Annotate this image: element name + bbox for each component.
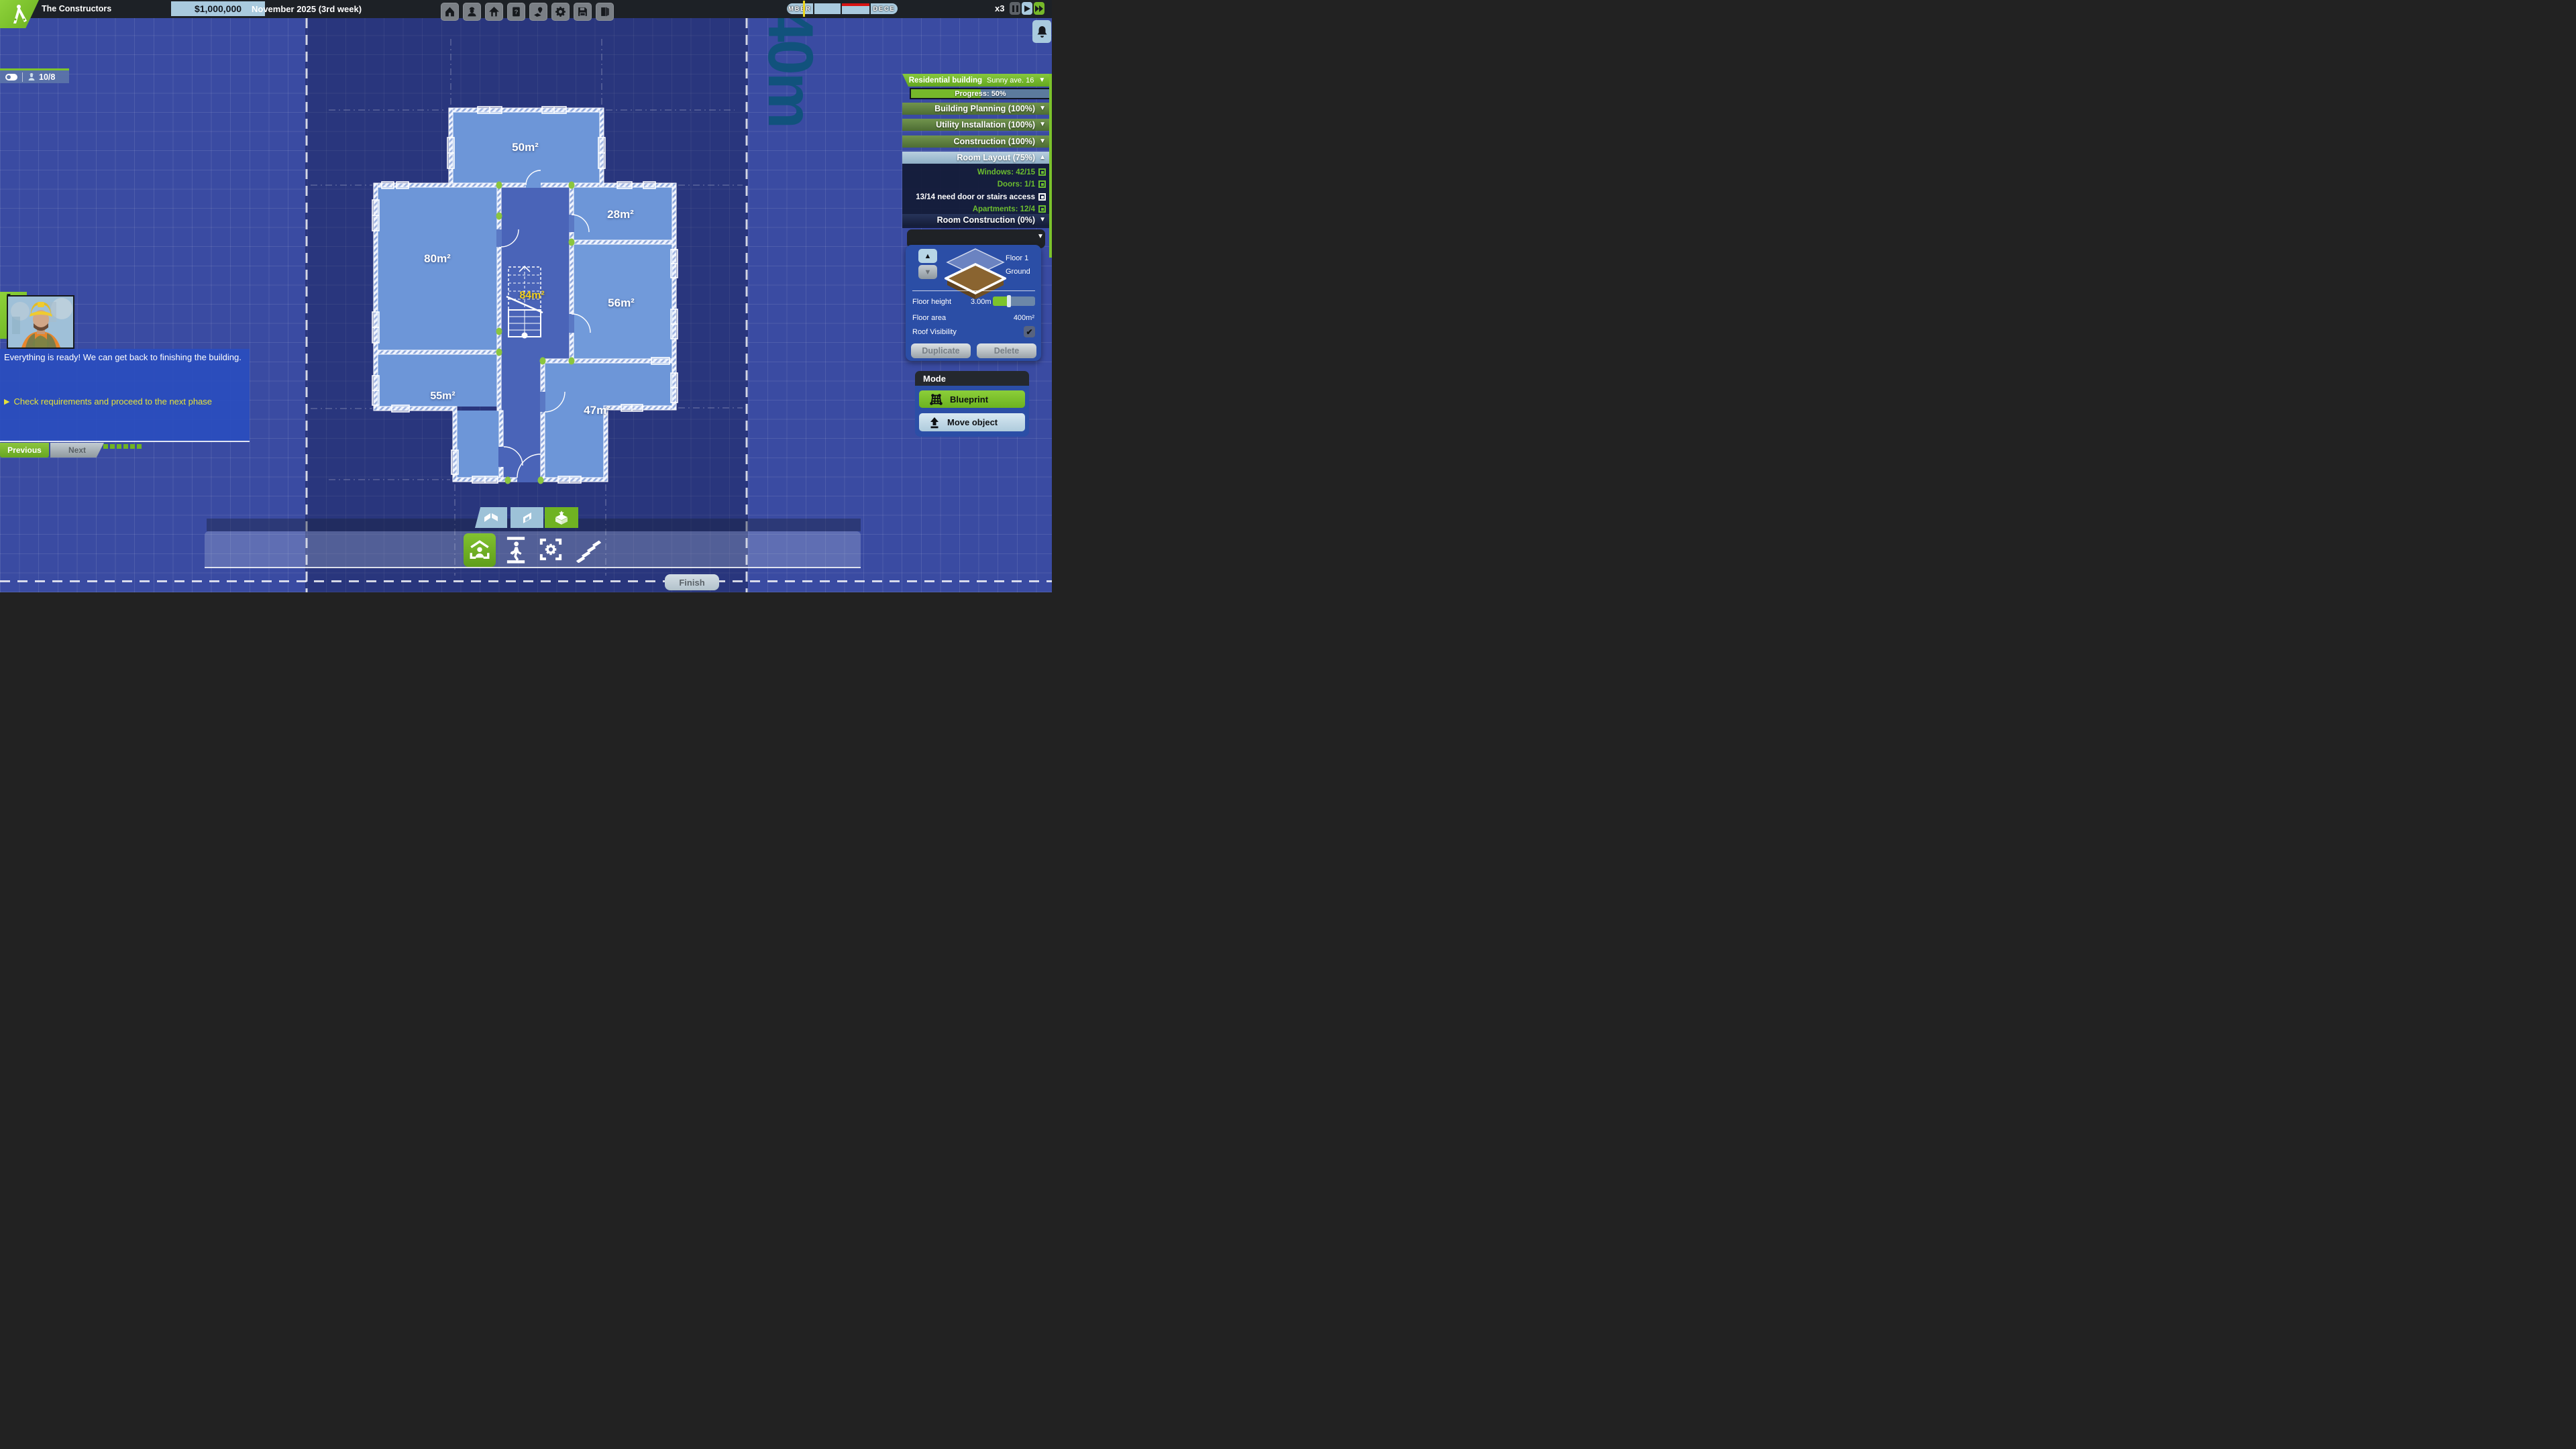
help-button[interactable]: ?: [507, 3, 525, 21]
delete-button[interactable]: Delete: [977, 343, 1036, 358]
blueprint-grid-icon: [928, 394, 943, 405]
slider-handle[interactable]: [1007, 295, 1011, 307]
roof-visibility-checkbox[interactable]: ✔: [1024, 326, 1035, 337]
checkbox-icon[interactable]: [1038, 168, 1046, 176]
crew-badge[interactable]: 10/8: [0, 68, 69, 83]
worker-icon: [28, 72, 36, 81]
plot-boundary-bottom: [0, 580, 1052, 582]
floor-height-value: 3.00m: [971, 298, 991, 306]
walls-corner-icon: [482, 511, 500, 525]
app-title: The Constructors: [42, 4, 111, 13]
home-button[interactable]: [441, 3, 459, 21]
check-doors[interactable]: Doors: 1/1: [902, 179, 1046, 189]
dialog-objective[interactable]: ▶ Check requirements and proceed to the …: [4, 396, 239, 407]
floor-area-value: 400m²: [1014, 314, 1034, 322]
chevron-down-icon: ▼: [1039, 138, 1046, 145]
object-box-star-icon: [553, 509, 570, 527]
chevron-down-icon: ▼: [1039, 121, 1046, 128]
timeline-segment-1[interactable]: MBER: [787, 3, 813, 14]
walls-tab[interactable]: [475, 507, 507, 528]
building-type: Residential building: [909, 76, 982, 85]
checkbox-icon[interactable]: [1038, 180, 1046, 188]
floor-height-slider[interactable]: [993, 297, 1035, 306]
apartment-icon: [468, 539, 491, 561]
crew-count: 10/8: [39, 72, 55, 82]
next-button[interactable]: Next: [50, 443, 104, 458]
room-label-47: 47m²: [584, 404, 610, 417]
crew-button[interactable]: [463, 3, 481, 21]
ground-floor-label[interactable]: Ground: [1006, 268, 1030, 276]
walking-person-icon: [505, 536, 527, 564]
floor-down-button[interactable]: ▼: [918, 265, 937, 279]
floor-area-label: Floor area: [912, 314, 946, 322]
chevron-down-icon[interactable]: ▼: [1037, 233, 1044, 240]
building-header[interactable]: Residential building Sunny ave. 16 ▼: [902, 74, 1052, 87]
floor-1-label[interactable]: Floor 1: [1006, 254, 1028, 262]
advisor-portrait[interactable]: [7, 295, 74, 349]
toggle-icon[interactable]: [5, 74, 17, 80]
notifications-button[interactable]: [1032, 20, 1051, 43]
mode-panel-body: Blueprint Move object: [915, 386, 1029, 437]
game-screen: 40m 50m² 80m² 28m² 84m² 56m² 55m² 47m² T…: [0, 0, 1052, 592]
objective-arrow-icon: ▶: [4, 397, 9, 406]
wall-slab-icon: [520, 511, 535, 525]
check-access[interactable]: 13/14 need door or stairs access: [902, 192, 1046, 202]
move-object-icon: [928, 417, 941, 429]
chevron-down-icon: ▼: [1038, 77, 1045, 84]
fast-forward-button[interactable]: [1034, 2, 1044, 15]
floor-height-label: Floor height: [912, 298, 951, 306]
tutorial-progress-squares: [103, 444, 142, 449]
gear-brackets-icon: [539, 537, 562, 562]
finish-button[interactable]: Finish: [665, 574, 719, 590]
room-55b: [457, 411, 499, 478]
checkbox-icon[interactable]: [1038, 193, 1046, 201]
hallway-entry: [503, 411, 541, 478]
timeline-cursor[interactable]: [803, 1, 805, 17]
room-label-56: 56m²: [608, 297, 635, 310]
phase-building-planning[interactable]: Building Planning (100%)▼: [902, 103, 1049, 115]
stairs-icon: [574, 536, 601, 563]
building-address: Sunny ave. 16: [987, 76, 1034, 85]
building-progress-bar: Progress: 50%: [910, 88, 1051, 99]
pause-button[interactable]: [1010, 2, 1020, 15]
timeline-deadline-marker: [842, 3, 869, 6]
bell-icon: [1036, 25, 1048, 38]
mode-panel-header: Mode: [915, 371, 1029, 386]
chevron-down-icon: ▼: [1039, 217, 1046, 223]
svg-text:?: ?: [515, 9, 519, 16]
dialog-divider: [0, 441, 250, 442]
blueprint-mode-button[interactable]: Blueprint: [919, 390, 1025, 408]
room-47b: [604, 363, 672, 406]
phase-room-layout[interactable]: Room Layout (75%)▲: [902, 152, 1049, 164]
wall-sections-tab[interactable]: [511, 507, 543, 528]
chevron-up-icon: ▲: [1039, 154, 1046, 161]
check-windows[interactable]: Windows: 42/15: [902, 167, 1046, 177]
money-display[interactable]: $1,000,000: [171, 1, 265, 16]
room-label-55: 55m²: [430, 390, 455, 402]
roof-visibility-label: Roof Visibility: [912, 328, 957, 336]
map-button[interactable]: [529, 3, 547, 21]
utilities-tool-button[interactable]: [539, 536, 562, 563]
floor-stack-icon[interactable]: [945, 245, 1006, 303]
dialog-message: Everything is ready! We can get back to …: [4, 352, 244, 362]
settings-button[interactable]: [551, 3, 570, 21]
phase-construction[interactable]: Construction (100%)▼: [902, 136, 1049, 148]
chevron-down-icon: ▼: [1039, 105, 1046, 112]
phase-utility-installation[interactable]: Utility Installation (100%)▼: [902, 119, 1049, 131]
building-button[interactable]: [485, 3, 503, 21]
check-apartments[interactable]: Apartments: 12/4: [902, 204, 1046, 214]
room-label-28: 28m²: [607, 208, 634, 221]
phase-room-construction[interactable]: Room Construction (0%)▼: [902, 214, 1049, 226]
speed-label: x3: [995, 3, 1004, 13]
mode-title: Mode: [923, 374, 946, 384]
timeline-segment-2[interactable]: [814, 3, 841, 14]
duplicate-button[interactable]: Duplicate: [911, 343, 971, 358]
toolbar-main-bar: [205, 531, 861, 568]
move-object-mode-button[interactable]: Move object: [919, 413, 1025, 431]
compass-icon: [9, 3, 30, 25]
progress-text: Progress: 50%: [911, 89, 1050, 98]
slider-fill: [993, 297, 1008, 306]
room-80: [378, 187, 497, 350]
objects-tab[interactable]: [545, 507, 578, 528]
exit-button[interactable]: [596, 3, 614, 21]
save-button[interactable]: [574, 3, 592, 21]
play-button[interactable]: [1022, 2, 1032, 15]
plot-dimension-label: 40m: [757, 7, 824, 188]
divider: [912, 290, 1035, 291]
panel-edge-strip: [1049, 74, 1052, 258]
floor-panel: ▲ ▼ Floor 1 Ground Floor height 3.00m Fl…: [906, 245, 1041, 361]
hallway-lower: [501, 363, 541, 411]
date-display: November 2025 (3rd week): [252, 4, 362, 14]
worker-portrait-image: [8, 297, 73, 347]
room-label-80: 80m²: [424, 252, 451, 266]
checkbox-icon[interactable]: [1038, 205, 1046, 213]
apartments-tool-button[interactable]: [464, 533, 496, 567]
timeline-segment-4[interactable]: DECE: [871, 3, 898, 14]
previous-button[interactable]: Previous: [0, 443, 49, 458]
advisor-dialog: Everything is ready! We can get back to …: [0, 349, 250, 441]
timeline-segment-3[interactable]: [842, 3, 869, 14]
stairs-tool-button[interactable]: [574, 536, 601, 563]
room-label-50: 50m²: [512, 141, 539, 154]
room-label-84: 84m²: [519, 290, 544, 302]
floor-up-button[interactable]: ▲: [918, 249, 937, 263]
walk-test-tool-button[interactable]: [504, 535, 527, 566]
room-47: [545, 363, 604, 478]
